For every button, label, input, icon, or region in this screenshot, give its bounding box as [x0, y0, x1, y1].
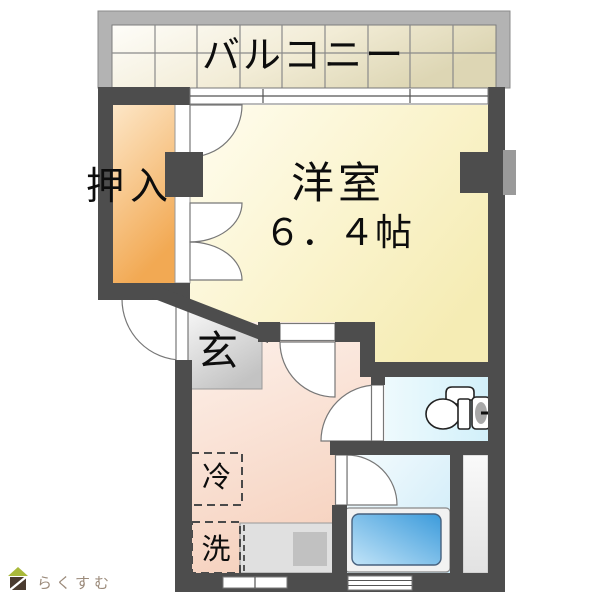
wall-step: [360, 322, 375, 377]
wall-kitchen-left: [175, 360, 192, 575]
washer-label: 洗: [192, 536, 240, 565]
house-logo-icon: [6, 565, 32, 593]
bath-window: [348, 576, 412, 590]
wall-toilet-top: [375, 362, 505, 377]
refrigerator-label: 冷: [191, 464, 242, 493]
toilet-door-panel: [372, 385, 384, 441]
entrance-door-arc: [122, 299, 182, 360]
wall-below-toilet: [330, 441, 505, 455]
entrance-label: 玄: [197, 331, 238, 372]
pillar-right-outer: [503, 150, 516, 195]
closet-label: 押入: [86, 168, 174, 206]
balcony-label: バルコニー: [98, 37, 510, 75]
wall-room-bottom-a: [258, 322, 280, 342]
pillar-right: [460, 152, 503, 193]
western-room-label: 洋室: [238, 163, 438, 206]
wall-bath-left: [332, 505, 347, 575]
bathroom-door-panel: [336, 455, 348, 505]
western-room-size-label: ６．４帖: [228, 214, 448, 251]
sink-icon: [293, 532, 327, 566]
floor-plan-drawing: [0, 0, 600, 600]
pipe-space: [463, 455, 488, 573]
brand-watermark: らくすむ: [6, 565, 113, 593]
wall-bath-right: [450, 455, 463, 575]
floor-plan-canvas: バルコニー 押入 洋室 ６．４帖 玄 冷 洗 らくすむ: [0, 0, 600, 600]
bathtub-icon: [352, 514, 441, 565]
brand-name: らくすむ: [37, 566, 113, 593]
western-room-door-panel: [280, 324, 335, 341]
wall-toilet-left-stub: [371, 377, 385, 385]
